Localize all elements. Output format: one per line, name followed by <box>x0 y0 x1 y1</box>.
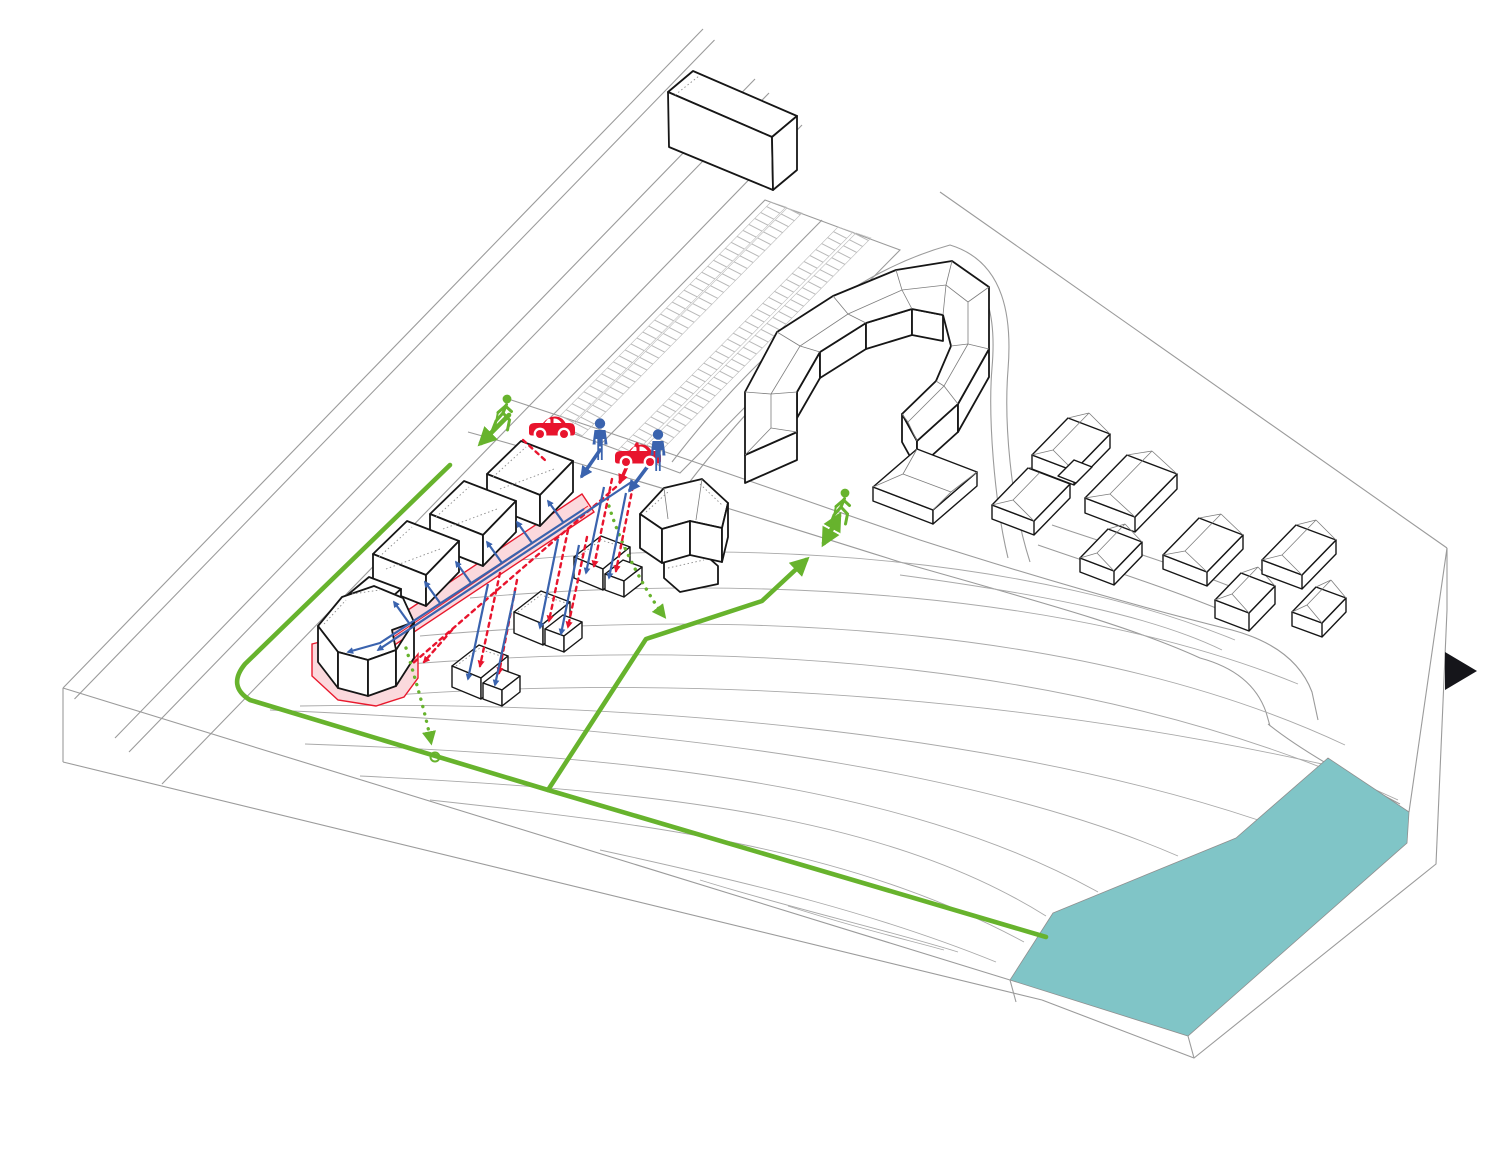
blue-crossing-arrow <box>582 450 600 476</box>
house <box>1080 524 1142 585</box>
box-building-north <box>668 71 797 190</box>
house <box>1085 451 1177 532</box>
blue-crossing-arrow <box>630 466 648 490</box>
site-diagram-canvas <box>0 0 1500 1166</box>
gabled-box-building <box>873 449 977 524</box>
cottage-l-shaped <box>452 645 520 706</box>
house <box>1262 520 1336 589</box>
house <box>1215 567 1275 631</box>
water-body <box>1010 758 1409 1036</box>
standing-person-icon <box>593 418 608 460</box>
house <box>1163 514 1243 586</box>
axonometric-site-diagram <box>0 0 1500 1166</box>
green-branch-path <box>548 560 806 790</box>
next-arrow-icon[interactable] <box>1445 652 1477 690</box>
cottage-l-shaped <box>514 591 582 652</box>
faceted-center-building <box>640 479 728 592</box>
